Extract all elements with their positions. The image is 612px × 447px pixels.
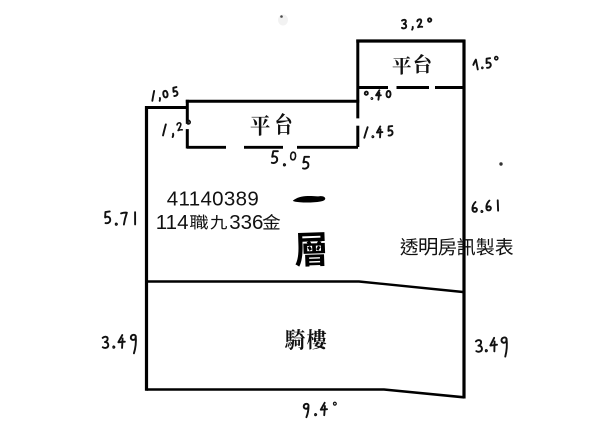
svg-text:336: 336 [229,211,263,234]
svg-text:114: 114 [156,211,189,234]
svg-text:41140389: 41140389 [167,188,259,211]
